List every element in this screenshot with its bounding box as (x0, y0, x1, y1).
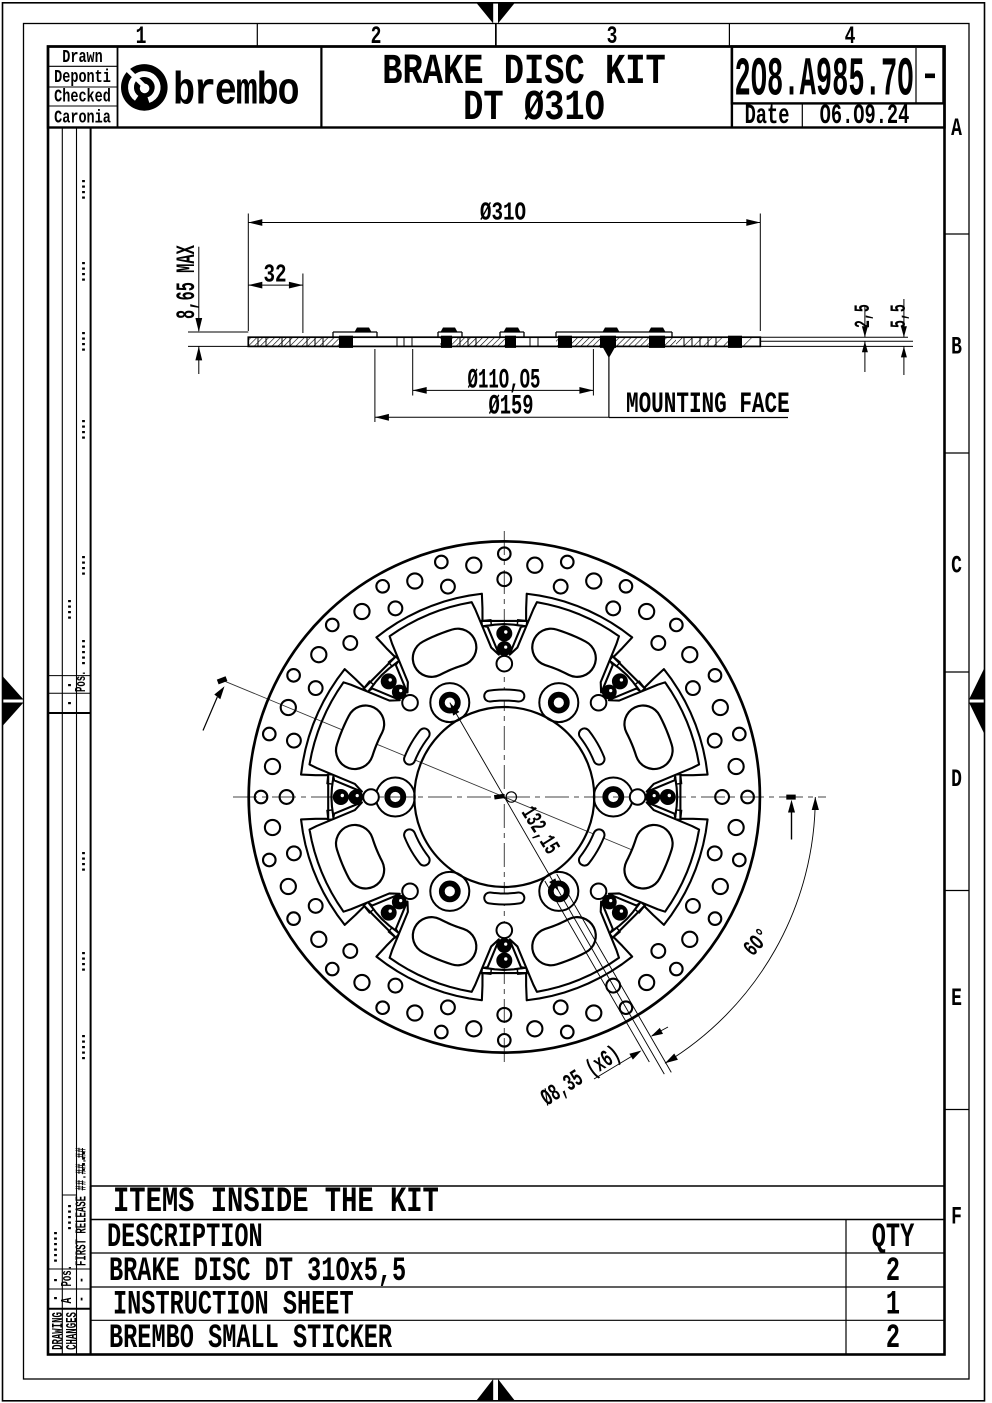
svg-text:Pos.: Pos. (73, 670, 90, 692)
svg-text:QTY: QTY (872, 1218, 915, 1256)
svg-text:5,5: 5,5 (888, 304, 912, 328)
svg-text:brembo: brembo (173, 67, 298, 117)
svg-text:F: F (951, 1203, 962, 1232)
svg-text:2: 2 (886, 1319, 900, 1357)
svg-text:Checked: Checked (54, 87, 111, 108)
svg-text:Drawn: Drawn (62, 47, 103, 68)
svg-text:32: 32 (263, 260, 286, 290)
svg-text:MOUNTING FACE: MOUNTING FACE (626, 387, 790, 422)
svg-text:E: E (951, 984, 962, 1013)
svg-text:Date: Date (745, 101, 790, 133)
svg-text:Ø31O: Ø31O (480, 198, 526, 228)
svg-text:DESCRIPTION: DESCRIPTION (107, 1218, 263, 1256)
svg-text:C: C (951, 552, 962, 581)
svg-text:DT Ø31O: DT Ø31O (463, 83, 605, 132)
svg-text:8,65 MAX: 8,65 MAX (172, 245, 203, 319)
svg-text:O6.O9.24: O6.O9.24 (820, 101, 910, 133)
svg-text:A: A (951, 114, 963, 143)
svg-text:CHANGES: CHANGES (64, 1312, 81, 1350)
svg-text:BREMBO SMALL STICKER: BREMBO SMALL STICKER (109, 1319, 392, 1357)
svg-text:Deponti: Deponti (54, 67, 111, 88)
svg-text:ITEMS INSIDE THE KIT: ITEMS INSIDE THE KIT (113, 1183, 439, 1222)
svg-text:Caronia: Caronia (54, 108, 111, 129)
svg-text:FIRST RELEASE ##.##.##: FIRST RELEASE ##.##.## (73, 1147, 90, 1266)
svg-text:B: B (951, 333, 962, 362)
svg-text:-: - (72, 1277, 90, 1283)
svg-text:2,5: 2,5 (852, 304, 876, 328)
svg-text:D: D (951, 765, 962, 794)
svg-text:-: - (72, 1296, 90, 1302)
svg-text:Ø159: Ø159 (488, 391, 533, 423)
